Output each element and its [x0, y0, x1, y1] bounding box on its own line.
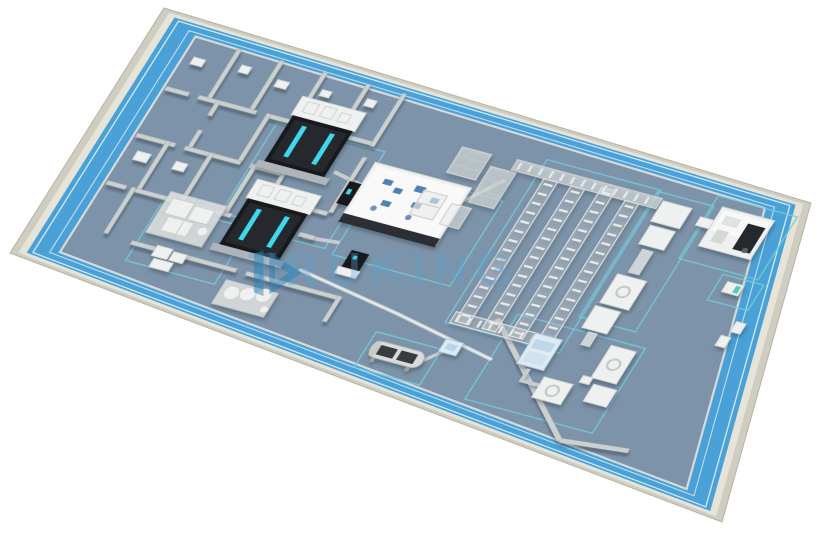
factory-floorplan-render: [0, 0, 820, 544]
